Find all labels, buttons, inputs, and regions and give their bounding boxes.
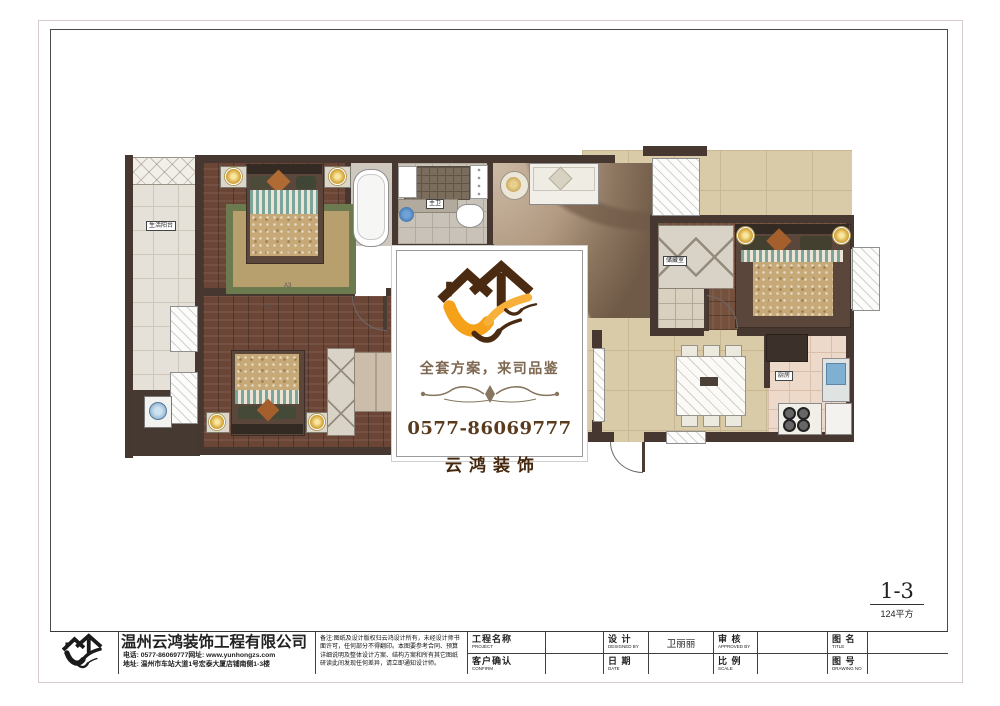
dining-chair	[703, 415, 720, 427]
field-drawingno-label: 图 号 DRAWING NO	[827, 653, 867, 674]
sink-basin	[826, 363, 846, 385]
field-design-value: 卫丽丽	[648, 632, 713, 653]
dining-chair	[725, 415, 742, 427]
master-bed-headboard	[246, 164, 322, 174]
center-logo-box: 全套方案，来司品鉴 0577-86069777 云鸿装饰	[396, 250, 583, 457]
entry-door-leaf	[642, 442, 645, 472]
bath-cabinet	[398, 166, 417, 198]
stove-burner	[783, 419, 796, 432]
master-bed-duvet	[250, 214, 318, 256]
sheet-number: 1-3	[870, 579, 924, 605]
left-window	[170, 306, 198, 352]
bottom-window	[666, 431, 706, 444]
table-lamp	[225, 168, 242, 185]
door-code: A3	[284, 283, 291, 290]
wall-segment	[592, 420, 602, 434]
notes-text: 备注:图纸及设计版权归云鸿设计所有，未经设计师书面许可，任何部分不得翻印。本图要…	[320, 636, 460, 667]
field-scale-value	[757, 653, 827, 674]
bath-shelf	[470, 165, 488, 199]
company-info-cell: 温州云鸿装饰工程有限公司 电话: 0577-86069777网址: www.yu…	[118, 632, 315, 674]
pillow	[800, 236, 832, 250]
dining-chair	[681, 415, 698, 427]
stove-burner	[797, 419, 810, 432]
balcony-window	[128, 157, 201, 185]
wall-segment	[644, 432, 668, 442]
right-bed-throw	[741, 250, 843, 262]
wardrobe	[327, 348, 355, 436]
right-window	[852, 247, 880, 311]
wall-segment	[125, 155, 133, 458]
room-label-balcony: 生活阳台	[146, 221, 176, 231]
phone-number: 0577-86069777	[407, 418, 571, 439]
entry-door-arc	[610, 442, 643, 473]
top-right-window	[652, 158, 700, 216]
sheet-number-block: 1-3 124平方	[864, 579, 930, 620]
company-logo-icon	[431, 257, 549, 352]
dining-table	[676, 356, 746, 416]
hall-glass-panel	[593, 348, 605, 422]
plant	[399, 207, 414, 222]
washer-drum	[149, 402, 167, 420]
table-lamp	[737, 227, 754, 244]
small-bath-floor	[658, 287, 706, 331]
slogan-text: 全套方案，来司品鉴	[420, 358, 560, 378]
dining-chair	[681, 345, 698, 357]
table-centerpiece	[700, 377, 718, 386]
company-name: 温州云鸿装饰工程有限公司	[121, 634, 315, 651]
cabinet	[354, 352, 398, 412]
right-bedroom-door-leaf	[704, 295, 707, 328]
table-lamp	[309, 414, 325, 430]
field-design-label: 设 计 DESIGNED BY	[603, 632, 648, 653]
notes-cell: 备注:图纸及设计版权归云鸿设计所有，未经设计师书面许可，任何部分不得翻印。本图要…	[315, 632, 467, 674]
dining-chair	[703, 345, 720, 357]
side-table-decor	[506, 177, 521, 192]
field-project-label: 工程名称 PROJECT	[467, 632, 545, 653]
sheet-area: 124平方	[864, 607, 930, 620]
wall-segment	[195, 155, 615, 163]
toilet	[456, 204, 484, 228]
bedroom-door-leaf	[384, 296, 387, 330]
field-date-value	[648, 653, 713, 674]
second-bed-duvet	[235, 354, 299, 390]
field-review-label: 审 核 APPROVED BY	[713, 632, 757, 653]
balcony-floor	[128, 158, 200, 390]
field-date-label: 日 期 DATE	[603, 653, 648, 674]
wall-segment	[650, 218, 658, 336]
pillow	[296, 176, 316, 189]
field-project-value	[545, 632, 603, 653]
table-lamp	[833, 227, 850, 244]
refrigerator	[825, 403, 852, 435]
field-review-value	[757, 632, 827, 653]
bathtub-inner	[357, 174, 385, 240]
field-title-value	[867, 632, 948, 653]
company-logo-mono-icon	[58, 632, 110, 675]
wall-segment	[195, 155, 203, 295]
wall-segment	[592, 330, 602, 348]
brand-name: 云鸿装饰	[438, 451, 541, 476]
field-title-label: 图 名 TITLE	[827, 632, 867, 653]
title-block-logo-cell	[50, 632, 118, 674]
room-label-storage: 储藏室	[663, 256, 687, 266]
second-bed-headboard	[231, 424, 303, 434]
master-bed-throw	[250, 190, 318, 214]
room-label-master-bath: 主卫	[426, 199, 444, 209]
field-drawingno-value	[867, 653, 948, 674]
table-lamp	[209, 414, 225, 430]
door-code: V1	[263, 305, 270, 312]
wall-segment	[650, 328, 704, 336]
wall-segment	[643, 146, 707, 156]
title-block: 温州云鸿装饰工程有限公司 电话: 0577-86069777网址: www.yu…	[50, 631, 948, 674]
wall-segment	[650, 215, 854, 223]
company-phone: 电话: 0577-86069777网址: www.yunhongzs.com	[123, 652, 315, 661]
table-lamp	[329, 168, 346, 185]
drawing-sheet: 生活阳台 主卫 储藏室 厨房 A3 V1 全套方案，来司品鉴	[0, 0, 1000, 706]
field-confirm-label: 客户确认 CONFIRM	[467, 653, 545, 674]
range-hood	[766, 334, 808, 362]
dining-chair	[725, 345, 742, 357]
wall-segment	[195, 447, 399, 455]
flourish-ornament-icon	[414, 382, 566, 411]
right-bed-duvet	[753, 262, 833, 316]
room-label-kitchen: 厨房	[775, 371, 793, 381]
field-confirm-value	[545, 653, 603, 674]
left-window	[170, 372, 198, 424]
field-scale-label: 比 例 SCALE	[713, 653, 757, 674]
company-address: 地址: 温州市车站大道1号宏泰大厦店铺南侧1-3楼	[123, 661, 315, 670]
